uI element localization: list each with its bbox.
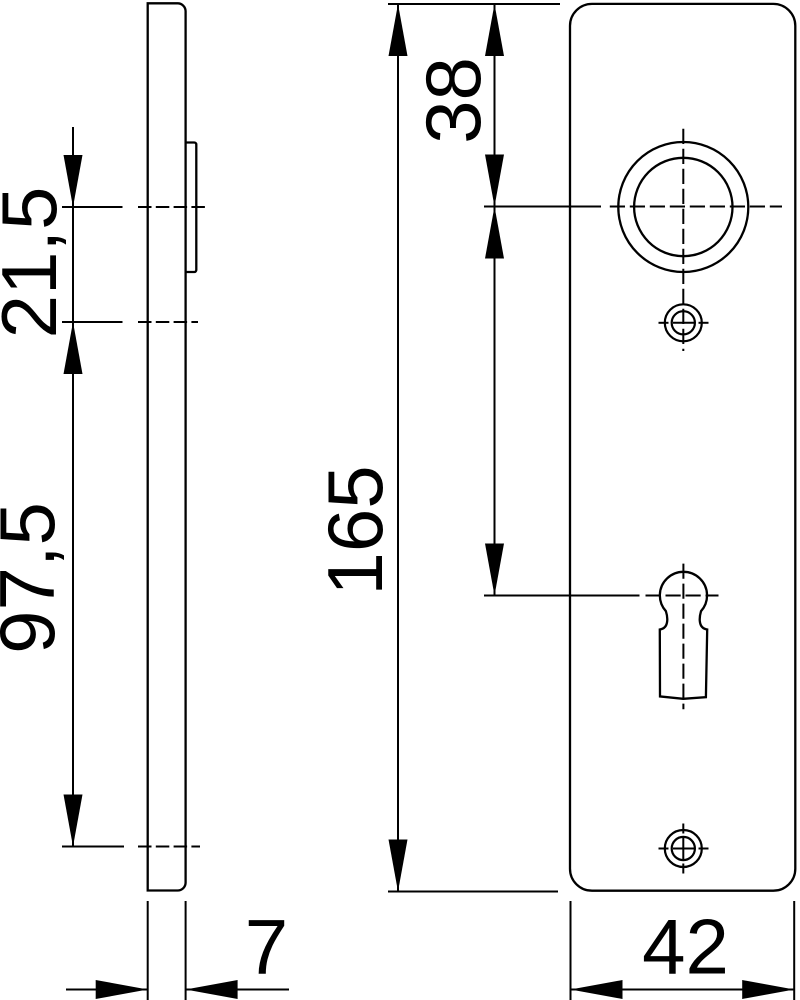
svg-text:7: 7 — [245, 903, 288, 991]
svg-text:42: 42 — [642, 903, 729, 991]
svg-text:38: 38 — [409, 57, 497, 144]
svg-text:21,5: 21,5 — [0, 187, 73, 339]
svg-text:165: 165 — [311, 465, 399, 595]
svg-text:97,5: 97,5 — [0, 502, 71, 654]
